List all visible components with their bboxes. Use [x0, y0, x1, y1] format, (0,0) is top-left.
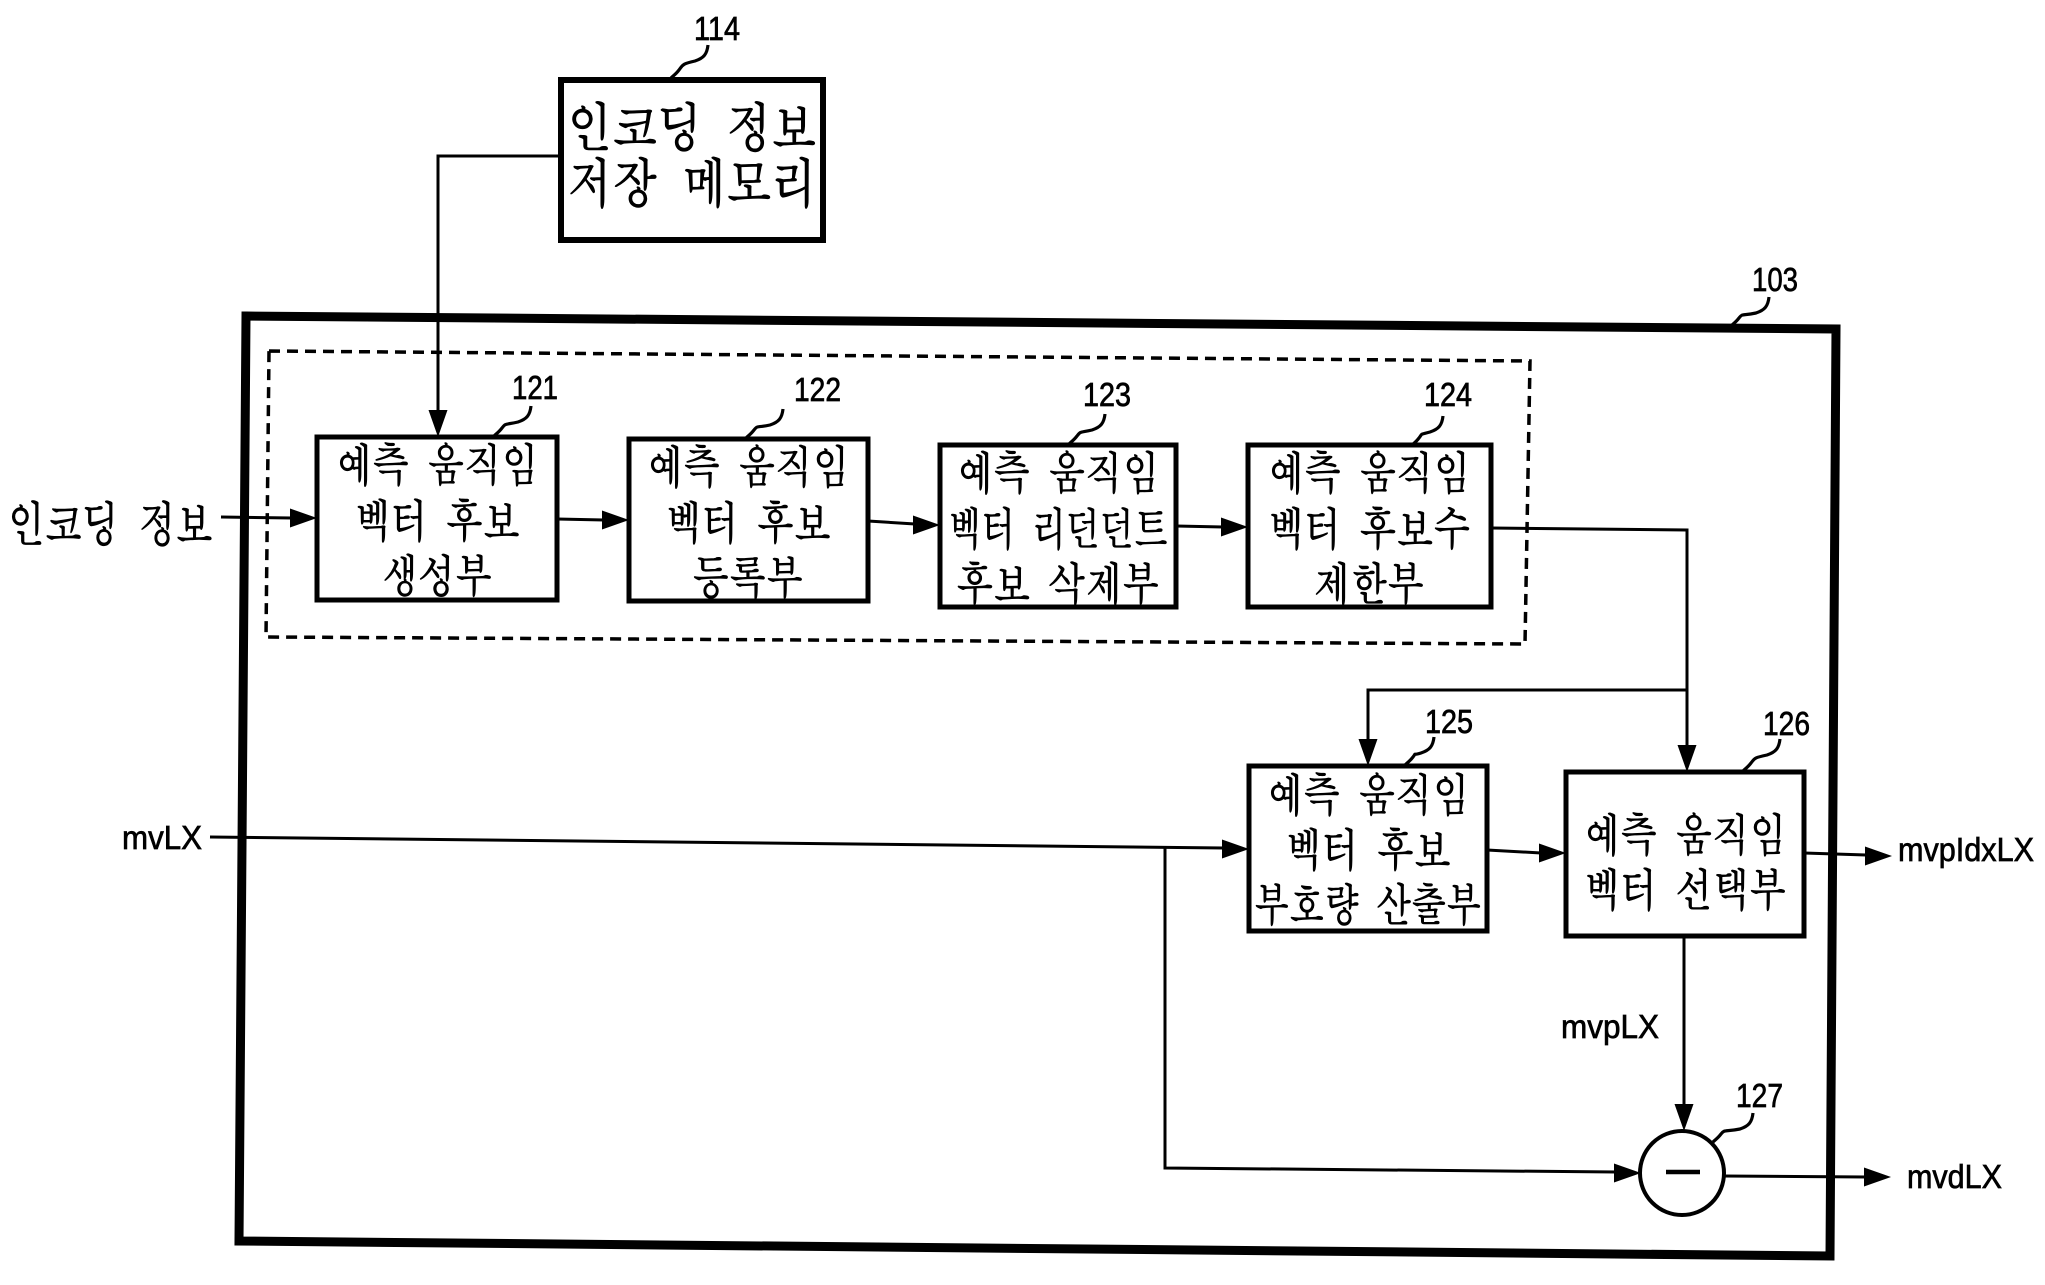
svg-text:123: 123	[1083, 376, 1131, 413]
svg-text:mvpLX: mvpLX	[1561, 1008, 1659, 1045]
svg-text:121: 121	[512, 369, 558, 406]
svg-text:127: 127	[1736, 1077, 1783, 1114]
svg-text:mvLX: mvLX	[122, 819, 202, 856]
svg-text:mvdLX: mvdLX	[1907, 1158, 2002, 1195]
svg-text:114: 114	[694, 10, 740, 47]
svg-text:mvpIdxLX: mvpIdxLX	[1898, 831, 2034, 868]
svg-text:124: 124	[1424, 376, 1472, 413]
svg-text:122: 122	[794, 371, 841, 408]
svg-text:103: 103	[1752, 261, 1798, 298]
svg-text:125: 125	[1425, 703, 1473, 740]
svg-text:126: 126	[1763, 705, 1810, 742]
